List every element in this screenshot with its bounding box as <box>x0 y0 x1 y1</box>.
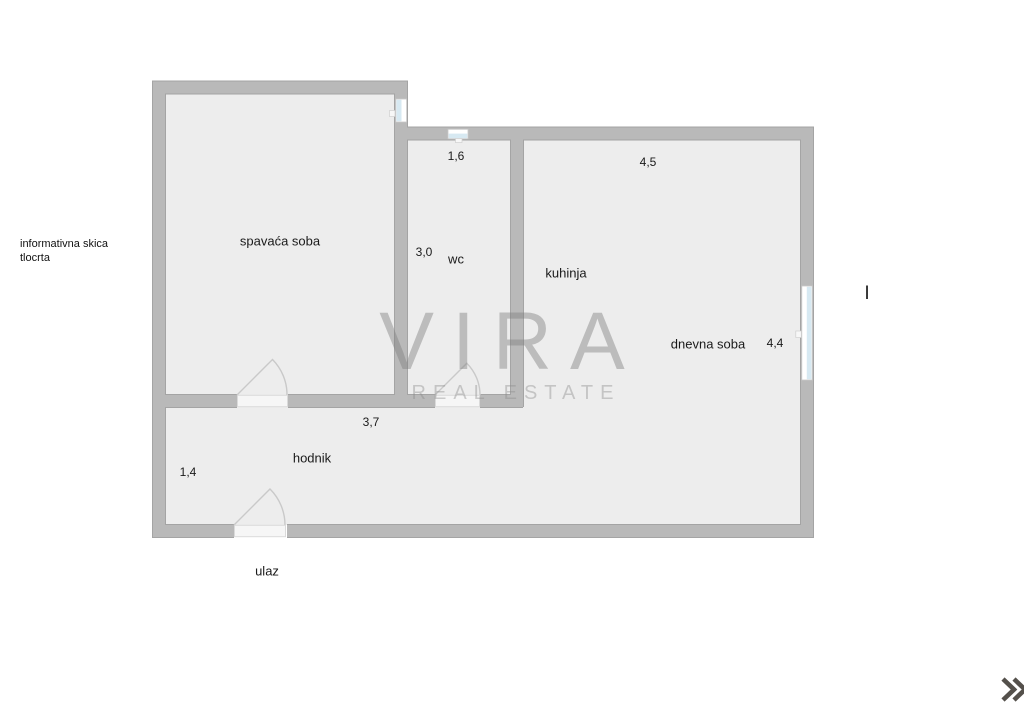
entrance-label: ulaz <box>255 564 279 579</box>
dimension-kuhinja-width: 4,5 <box>640 155 657 169</box>
door-threshold-ulaz <box>235 525 286 536</box>
window-handle-icon <box>456 139 463 143</box>
door-threshold-wc <box>436 395 480 406</box>
room-label-wc: wc <box>448 252 464 267</box>
room-floors <box>165 93 801 525</box>
room-floor-hodnik <box>165 407 801 525</box>
dimension-dnevna-depth: 4,4 <box>767 336 784 350</box>
plan-note: informativna skica tlocrta <box>20 238 108 265</box>
dimension-hodnik-length: 3,7 <box>363 415 380 429</box>
floorplan-drawing <box>0 0 1024 720</box>
window-handle-icon <box>796 331 802 338</box>
room-label-kuhinja: kuhinja <box>545 266 586 281</box>
room-label-spavaca-soba: spavaća soba <box>240 234 320 249</box>
dimension-wc-depth: 3,0 <box>416 245 433 259</box>
floor-marker: I <box>864 283 869 305</box>
dimension-wc-width: 1,6 <box>448 149 465 163</box>
dimension-hodnik-width: 1,4 <box>180 465 197 479</box>
next-button[interactable] <box>1001 676 1024 703</box>
double-chevron-right-icon <box>1001 676 1024 703</box>
door-threshold-spavaca <box>238 395 288 406</box>
room-label-dnevna-soba: dnevna soba <box>671 337 745 352</box>
room-label-hodnik: hodnik <box>293 451 331 466</box>
window-handle-icon <box>390 111 396 117</box>
plan-note-line2: tlocrta <box>20 252 108 266</box>
room-floor-wc <box>407 139 511 395</box>
plan-note-line1: informativna skica <box>20 238 108 252</box>
